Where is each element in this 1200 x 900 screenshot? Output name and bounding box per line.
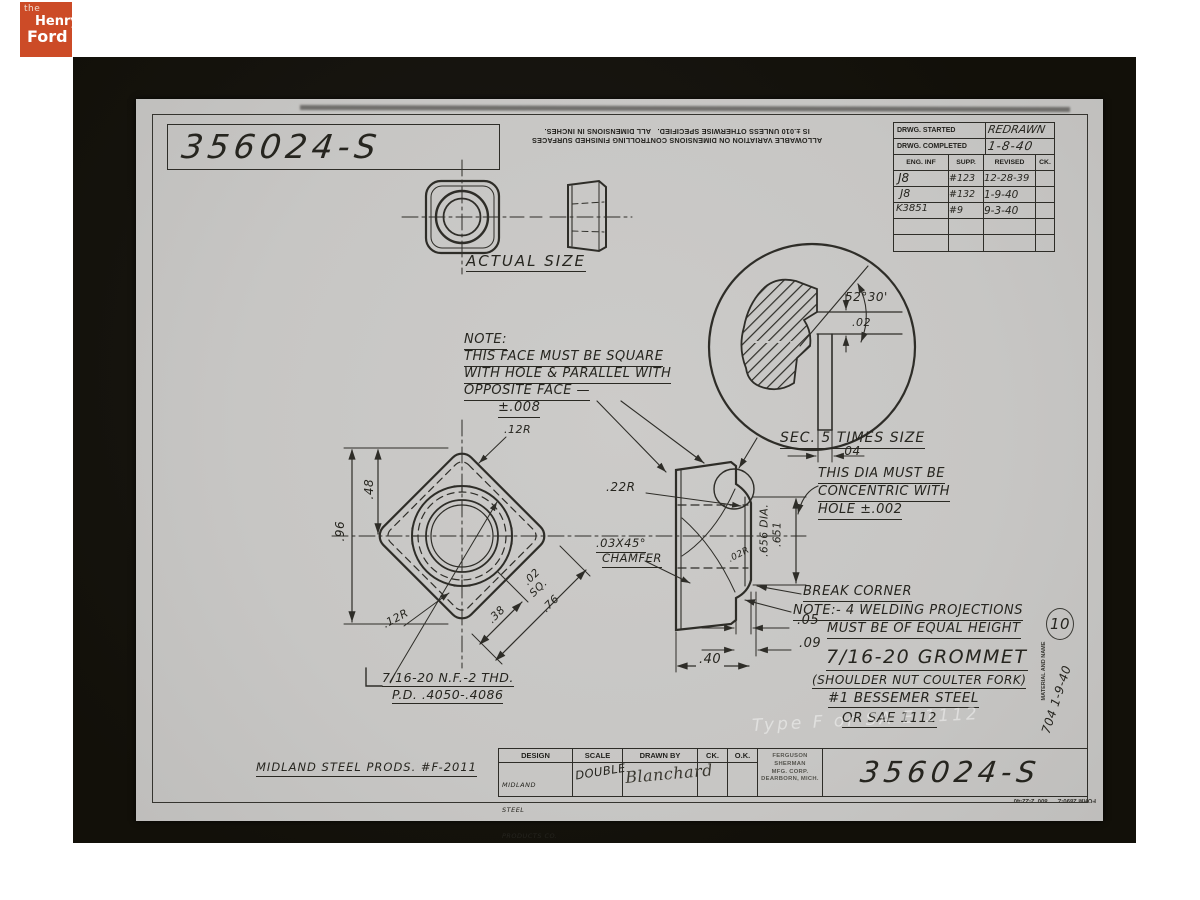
col-ck: CK. (1036, 155, 1054, 166)
part-title-2: (SHOULDER NUT COULTER FORK) (812, 673, 1026, 689)
col-eng-inf: ENG. INF (894, 155, 948, 166)
cell: #132 (949, 187, 983, 200)
ok-label: O.K. (728, 749, 757, 763)
cell: #123 (949, 171, 983, 184)
revision-table: DRWG. STARTED REDRAWN DRWG. COMPLETED 1-… (893, 122, 1055, 252)
radius-22: .22R (606, 480, 635, 494)
dim-48: .48 (362, 479, 376, 500)
henry-ford-logo: the Henry Ford (20, 2, 72, 57)
page-number-circled: 10 (1046, 608, 1074, 640)
col-supp: SUPP. (949, 155, 983, 166)
tolerance-note: ALLOWABLE VARIATION ON DIMENSIONS CONTRO… (462, 127, 892, 145)
drawing-number-box: 356024-S (167, 124, 500, 170)
stamp-line-3: MFG. CORP. (758, 769, 822, 777)
title-block-number: 356024-S (820, 749, 1090, 790)
face-note-1: NOTE: (464, 332, 507, 350)
form-number: FORM 2890-Z 800 2-22-40 (926, 797, 1096, 803)
drawn-by-signature: Blanchard (622, 760, 698, 788)
revision-row-started: DRWG. STARTED REDRAWN (894, 123, 1054, 139)
design-value-2: STEEL (502, 806, 572, 814)
dia-note-3: HOLE ±.002 (818, 502, 902, 520)
dim-656: .656 DIA. (758, 504, 771, 557)
dim-09: .09 (799, 636, 821, 652)
ok-cell: O.K. (728, 749, 758, 796)
chamfer-label: CHAMFER (602, 552, 662, 568)
col-revised: REVISED (984, 155, 1035, 166)
stamp-cell: FERGUSON SHERMAN MFG. CORP. DEARBORN, MI… (758, 749, 823, 796)
dim-02-section: .02 (852, 316, 871, 329)
cell: 9-3-40 (984, 203, 1035, 217)
drawn-by-cell: DRAWN BY Blanchard (623, 749, 698, 796)
stamp-line-1: FERGUSON (758, 753, 822, 761)
started-label: DRWG. STARTED (894, 123, 985, 134)
welding-note-1: NOTE:- 4 WELDING PROJECTIONS (793, 603, 1023, 621)
ck-cell: CK. (698, 749, 728, 796)
material-and-name-label: MATERIAL AND NAME (1041, 635, 1047, 707)
cell: J8 (894, 187, 948, 200)
design-label: DESIGN (499, 749, 572, 763)
dim-651: .651 (771, 522, 784, 547)
thread-note-2: P.D. .4050-.4086 (392, 687, 503, 704)
dim-96: .96 (333, 521, 347, 542)
dim-04-section: .04 (840, 444, 861, 458)
design-value-1: MIDLAND (502, 781, 572, 789)
revision-row-2: J8 #132 1-9-40 (894, 187, 1054, 203)
face-note-5: ±.008 (498, 400, 540, 418)
revision-row-completed: DRWG. COMPLETED 1-8-40 (894, 139, 1054, 155)
scale-cell: SCALE DOUBLE (573, 749, 623, 796)
face-note-4: OPPOSITE FACE — (464, 383, 590, 401)
cell: #9 (949, 203, 983, 216)
cell: 1-9-40 (984, 187, 1035, 201)
revision-header-row: ENG. INF SUPP. REVISED CK. (894, 155, 1054, 171)
dia-note-2: CONCENTRIC WITH (818, 484, 950, 502)
angle-dim: 52°30' (845, 290, 888, 304)
title-block: DESIGN MIDLAND STEEL PRODUCTS CO. SCALE … (498, 748, 1088, 797)
logo-ford: Ford (27, 29, 72, 45)
thread-note-1: 7/16-20 N.F.-2 THD. (382, 670, 514, 687)
revision-row-5 (894, 235, 1054, 251)
started-value: REDRAWN (985, 123, 1055, 136)
radius-12-top: .12R (504, 423, 531, 436)
welding-note-2: MUST BE OF EQUAL HEIGHT (827, 621, 1021, 639)
number-cell: 356024-S (823, 749, 1087, 796)
completed-value: 1-8-40 (985, 139, 1055, 153)
ck-label: CK. (698, 749, 727, 763)
face-note-3: WITH HOLE & PARALLEL WITH (464, 366, 671, 384)
design-cell: DESIGN MIDLAND STEEL PRODUCTS CO. (499, 749, 573, 796)
drawing-number: 356024-S (179, 127, 383, 167)
tolerance-note-line1: ALLOWABLE VARIATION ON DIMENSIONS CONTRO… (462, 136, 892, 145)
design-value-3: PRODUCTS CO. (502, 832, 572, 840)
revision-row-1: J8 #123 12-28-39 (894, 171, 1054, 187)
logo-the: the (24, 5, 72, 14)
revision-row-4 (894, 219, 1054, 235)
cell: K3851 (894, 203, 948, 214)
dia-note-1: THIS DIA MUST BE (818, 466, 945, 484)
dim-40: .40 (696, 652, 724, 668)
stamp-line-2: SHERMAN (758, 761, 822, 769)
footer-note: MIDLAND STEEL PRODS. #F-2011 (256, 761, 477, 777)
break-corner-note: BREAK CORNER (803, 584, 912, 602)
revision-row-3: K3851 #9 9-3-40 (894, 203, 1054, 219)
completed-label: DRWG. COMPLETED (894, 139, 985, 150)
part-title-1: 7/16-20 GROMMET (826, 646, 1028, 671)
tolerance-note-line2: IS ±.010 UNLESS OTHERWISE SPECIFIED. ALL… (462, 127, 892, 136)
cell: 12-28-39 (984, 171, 1035, 184)
stamp-line-4: DEARBORN, MICH. (758, 776, 822, 784)
face-note-2: THIS FACE MUST BE SQUARE (464, 349, 663, 367)
cell: J8 (894, 171, 948, 185)
actual-size-label: ACTUAL SIZE (466, 252, 586, 272)
